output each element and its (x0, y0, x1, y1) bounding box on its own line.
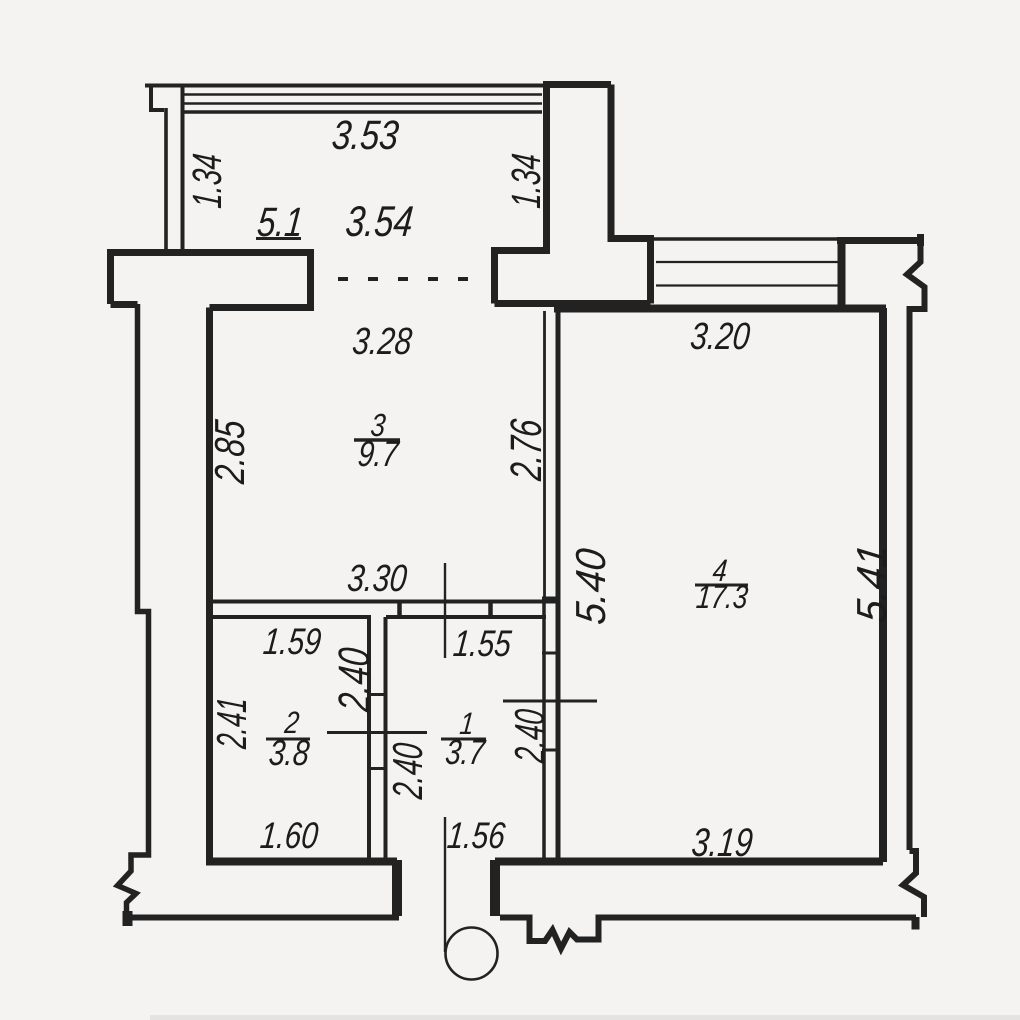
svg-text:3.54: 3.54 (344, 199, 416, 246)
svg-text:1.55: 1.55 (451, 624, 513, 665)
svg-text:3.19: 3.19 (690, 819, 755, 865)
svg-text:1.34: 1.34 (185, 152, 231, 210)
svg-text:2.85: 2.85 (206, 418, 253, 486)
svg-text:3.8: 3.8 (267, 732, 311, 773)
svg-text:17.3: 17.3 (695, 579, 750, 615)
svg-text:2.40: 2.40 (330, 645, 379, 714)
svg-text:1.56: 1.56 (445, 816, 507, 857)
svg-text:3.28: 3.28 (351, 321, 414, 363)
svg-text:2.41: 2.41 (209, 696, 256, 751)
svg-text:3.20: 3.20 (689, 316, 752, 358)
svg-text:5.40: 5.40 (567, 546, 615, 627)
svg-text:5.1: 5.1 (255, 199, 305, 245)
svg-text:5.41: 5.41 (848, 542, 895, 625)
svg-text:1.34: 1.34 (504, 152, 550, 210)
svg-text:2.40: 2.40 (506, 707, 553, 765)
svg-text:1.60: 1.60 (258, 816, 320, 857)
svg-text:2.76: 2.76 (502, 417, 551, 484)
svg-text:3.7: 3.7 (444, 732, 488, 772)
svg-text:1.59: 1.59 (261, 622, 323, 663)
svg-text:9.7: 9.7 (356, 433, 402, 474)
svg-text:3.53: 3.53 (330, 113, 401, 159)
svg-text:2.40: 2.40 (383, 741, 431, 801)
svg-text:3.30: 3.30 (346, 558, 409, 600)
